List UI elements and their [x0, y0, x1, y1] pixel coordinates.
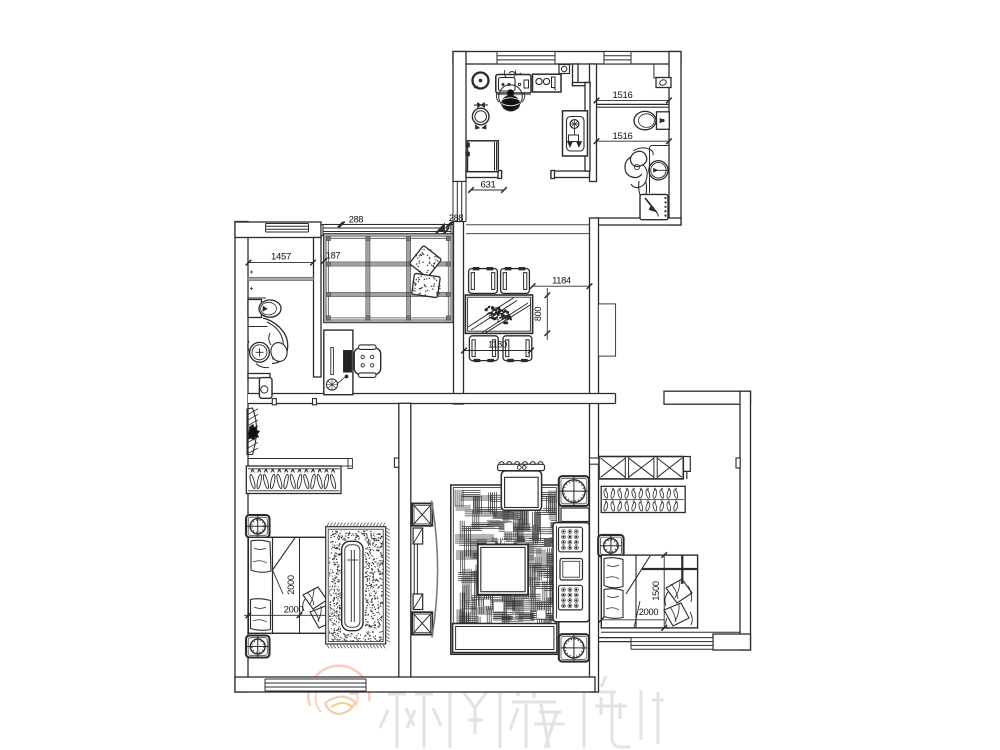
svg-text:1500: 1500: [651, 581, 661, 601]
svg-text:2000: 2000: [639, 607, 659, 617]
svg-text:2000: 2000: [284, 604, 304, 614]
svg-text:631: 631: [481, 179, 496, 190]
svg-text:288: 288: [349, 215, 364, 225]
svg-text:800: 800: [533, 307, 543, 321]
svg-text:1516: 1516: [613, 131, 633, 142]
svg-text:2000: 2000: [286, 575, 296, 595]
svg-text:1184: 1184: [552, 276, 571, 286]
svg-text:1180: 1180: [488, 339, 507, 349]
svg-text:1516: 1516: [613, 90, 633, 101]
svg-text:1457: 1457: [271, 252, 291, 263]
svg-text:187: 187: [326, 251, 341, 261]
svg-text:288: 288: [449, 213, 464, 223]
